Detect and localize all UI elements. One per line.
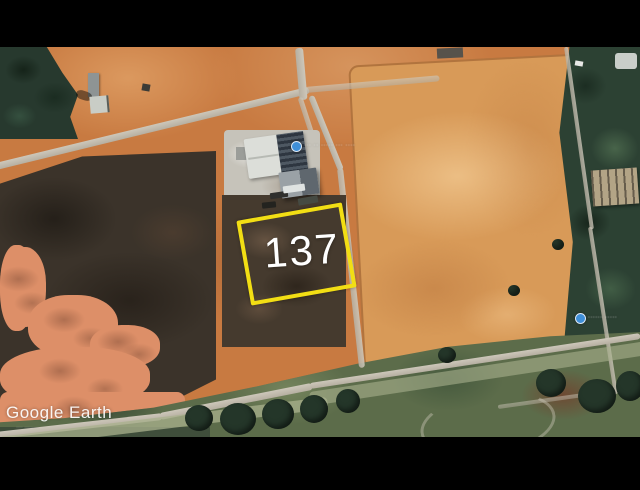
tree	[300, 395, 328, 423]
shed-structure	[89, 95, 109, 114]
small-structure	[141, 83, 150, 91]
letterbox-top	[0, 0, 640, 47]
tree	[336, 389, 360, 413]
trees-top-left	[0, 47, 78, 139]
tree	[220, 403, 256, 435]
satellite-view[interactable]: 137 ∙∙∙ ∙∙ ∙∙∙∙∙ ∙∙∙ ∙∙∙∙ ∙∙∙∙∙∙ ∙∙∙∙∙ G…	[0, 47, 640, 437]
letterbox-bottom	[0, 437, 640, 490]
shrub	[552, 239, 564, 250]
building-top-right	[615, 53, 637, 69]
copyright-fine-print: ∙∙∙∙ ∙∙∙∙∙	[16, 425, 33, 431]
shrub	[438, 347, 456, 363]
place-label-building: ∙∙∙ ∙∙ ∙∙∙∙∙ ∙∙∙ ∙∙∙∙	[304, 142, 355, 149]
shrub	[508, 285, 520, 296]
tree	[185, 405, 213, 431]
tree	[578, 379, 616, 413]
roof-ridge	[249, 154, 280, 160]
google-earth-watermark: Google Earth	[6, 403, 112, 423]
tree	[536, 369, 566, 397]
map-pin-icon	[291, 141, 302, 152]
place-label-right: ∙∙∙∙∙∙ ∙∙∙∙∙	[588, 314, 638, 321]
building-right-edge	[591, 167, 639, 206]
tree	[616, 371, 640, 401]
graded-patch	[437, 47, 463, 58]
solar-panels	[276, 131, 308, 174]
plot-number-label: 137	[245, 223, 358, 279]
map-pin-icon	[575, 313, 586, 324]
screenshot-root: 137 ∙∙∙ ∙∙ ∙∙∙∙∙ ∙∙∙ ∙∙∙∙ ∙∙∙∙∙∙ ∙∙∙∙∙ G…	[0, 0, 640, 490]
tree	[262, 399, 294, 429]
